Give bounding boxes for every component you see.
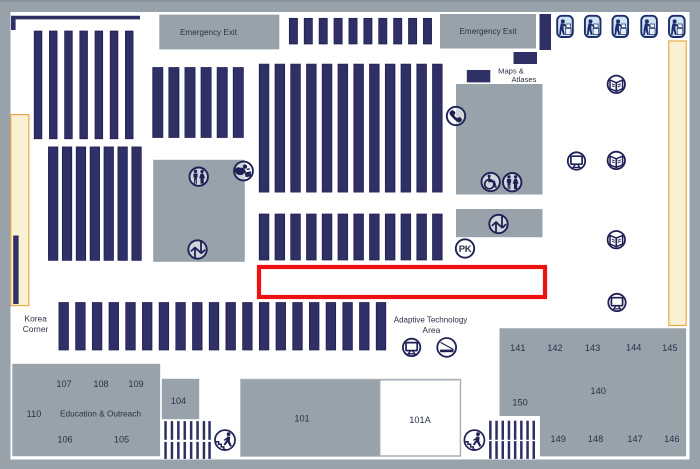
svg-text:Corner: Corner — [23, 324, 49, 334]
svg-text:108: 108 — [93, 379, 108, 389]
svg-text:145: 145 — [662, 343, 677, 353]
svg-text:142: 142 — [547, 343, 562, 353]
svg-text:148: 148 — [588, 434, 603, 444]
svg-text:143: 143 — [585, 343, 600, 353]
svg-text:149: 149 — [551, 434, 566, 444]
svg-text:140: 140 — [591, 386, 606, 396]
svg-text:106: 106 — [57, 435, 72, 445]
svg-text:101A: 101A — [409, 415, 431, 425]
svg-text:Emergency Exit: Emergency Exit — [180, 27, 238, 37]
svg-text:101: 101 — [294, 414, 309, 424]
svg-text:104: 104 — [171, 396, 186, 406]
svg-text:141: 141 — [510, 343, 525, 353]
svg-text:105: 105 — [114, 435, 129, 445]
svg-text:146: 146 — [664, 434, 679, 444]
svg-text:Adaptive Technology: Adaptive Technology — [394, 315, 468, 325]
svg-text:109: 109 — [128, 379, 143, 389]
svg-text:110: 110 — [27, 409, 42, 419]
svg-text:Korea: Korea — [25, 314, 48, 324]
svg-text:150: 150 — [512, 397, 527, 407]
svg-text:107: 107 — [56, 379, 71, 389]
svg-text:Area: Area — [422, 325, 440, 335]
svg-text:147: 147 — [627, 434, 642, 444]
svg-text:144: 144 — [626, 343, 641, 353]
svg-text:Emergency Exit: Emergency Exit — [460, 26, 518, 36]
svg-text:Atlases: Atlases — [512, 75, 537, 84]
svg-text:Education & Outreach: Education & Outreach — [60, 409, 141, 419]
